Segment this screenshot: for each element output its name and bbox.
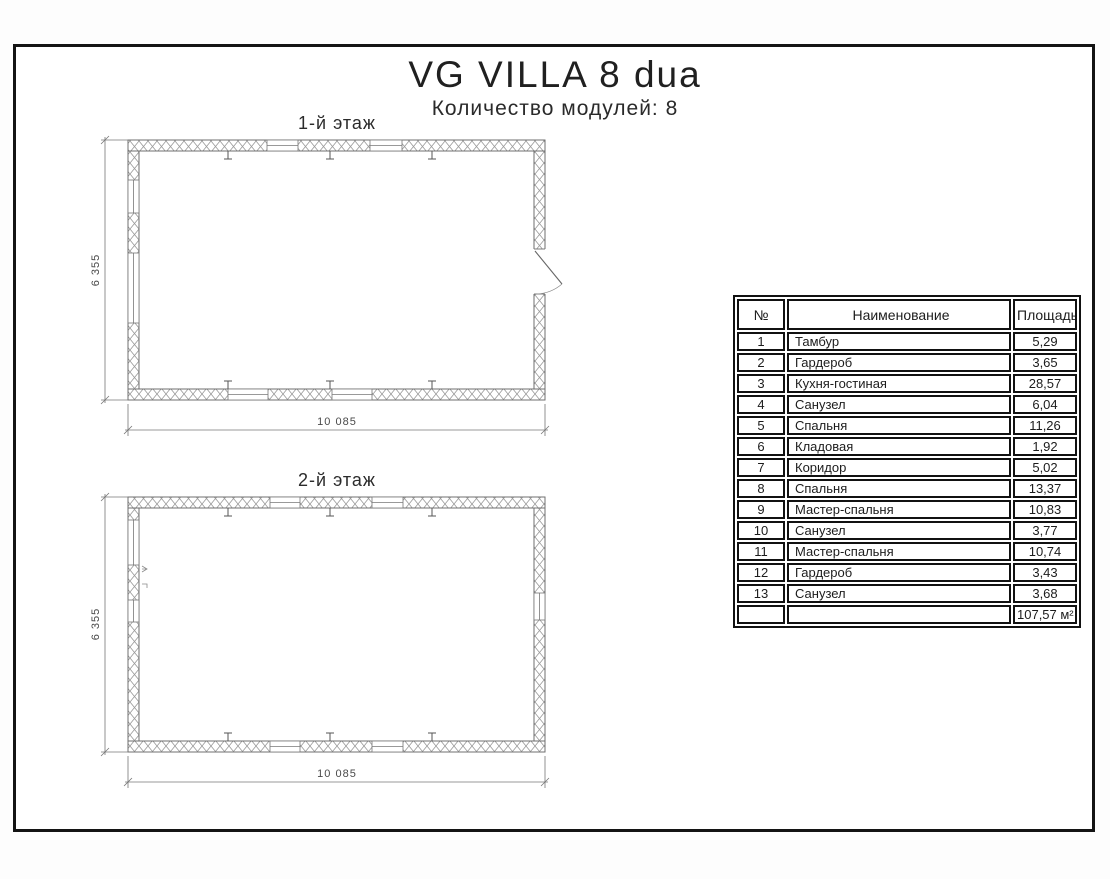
floor-plan-2: 2-й этаж — [90, 470, 549, 788]
room-area: 3,77 — [1013, 521, 1077, 540]
row-number: 10 — [737, 521, 785, 540]
row-number: 9 — [737, 500, 785, 519]
floor1-entry-door — [534, 249, 563, 294]
floor2-windows — [128, 497, 545, 752]
row-number: 2 — [737, 353, 785, 372]
table-header-row: № Наименование Площадь — [737, 299, 1077, 330]
row-number: 6 — [737, 437, 785, 456]
table-row: 5Спальня11,26 — [737, 416, 1077, 435]
room-name: Мастер-спальня — [787, 500, 1011, 519]
table-row: 11Мастер-спальня10,74 — [737, 542, 1077, 561]
floor1-label: 1-й этаж — [298, 113, 376, 133]
room-name: Мастер-спальня — [787, 542, 1011, 561]
table-row: 8Спальня13,37 — [737, 479, 1077, 498]
room-name: Гардероб — [787, 353, 1011, 372]
row-number: 1 — [737, 332, 785, 351]
area-table-container: № Наименование Площадь 1Тамбур5,292Гарде… — [733, 295, 1081, 628]
table-row: 10Санузел3,77 — [737, 521, 1077, 540]
floor1-walls — [128, 140, 545, 400]
room-name: Гардероб — [787, 563, 1011, 582]
room-name: Спальня — [787, 416, 1011, 435]
row-number: 8 — [737, 479, 785, 498]
room-name: Спальня — [787, 479, 1011, 498]
row-number: 4 — [737, 395, 785, 414]
col-header-name: Наименование — [787, 299, 1011, 330]
floor2-width-dimension: 10 085 — [317, 768, 357, 780]
floor2-label: 2-й этаж — [298, 470, 376, 490]
room-area: 10,83 — [1013, 500, 1077, 519]
room-area: 5,02 — [1013, 458, 1077, 477]
table-row: 7Коридор5,02 — [737, 458, 1077, 477]
room-area: 3,43 — [1013, 563, 1077, 582]
table-row: 12Гардероб3,43 — [737, 563, 1077, 582]
room-area: 11,26 — [1013, 416, 1077, 435]
table-row: 3Кухня-гостиная28,57 — [737, 374, 1077, 393]
floor1-width-dimension: 10 085 — [317, 416, 357, 428]
area-table: № Наименование Площадь 1Тамбур5,292Гарде… — [733, 295, 1081, 628]
total-row-number-cell — [737, 605, 785, 624]
floor-plans-drawing: 1-й этаж — [85, 108, 565, 798]
table-row: 9Мастер-спальня10,83 — [737, 500, 1077, 519]
room-name: Санузел — [787, 395, 1011, 414]
floor1-dim-vertical — [101, 136, 128, 404]
room-name: Коридор — [787, 458, 1011, 477]
room-name: Санузел — [787, 584, 1011, 603]
floor2-walls — [128, 497, 545, 752]
floor1-module-ticks — [224, 151, 436, 389]
row-number: 11 — [737, 542, 785, 561]
col-header-area: Площадь — [1013, 299, 1077, 330]
floor2-dim-vertical — [101, 493, 128, 756]
room-area: 28,57 — [1013, 374, 1077, 393]
col-header-number: № — [737, 299, 785, 330]
floor1-height-dimension: 6 355 — [90, 254, 102, 287]
total-row-name-cell — [787, 605, 1011, 624]
table-row: 4Санузел6,04 — [737, 395, 1077, 414]
table-row: 2Гардероб3,65 — [737, 353, 1077, 372]
total-row: 107,57 м² — [737, 605, 1077, 624]
row-number: 7 — [737, 458, 785, 477]
room-area: 6,04 — [1013, 395, 1077, 414]
room-area: 5,29 — [1013, 332, 1077, 351]
area-table-body: 1Тамбур5,292Гардероб3,653Кухня-гостиная2… — [737, 332, 1077, 603]
table-row: 13Санузел3,68 — [737, 584, 1077, 603]
row-number: 12 — [737, 563, 785, 582]
room-name: Тамбур — [787, 332, 1011, 351]
room-area: 1,92 — [1013, 437, 1077, 456]
row-number: 5 — [737, 416, 785, 435]
room-area: 3,68 — [1013, 584, 1077, 603]
row-number: 13 — [737, 584, 785, 603]
room-name: Кухня-гостиная — [787, 374, 1011, 393]
page-title: VG VILLA 8 dua — [0, 54, 1110, 96]
total-area: 107,57 м² — [1013, 605, 1077, 624]
row-number: 3 — [737, 374, 785, 393]
room-area: 10,74 — [1013, 542, 1077, 561]
room-area: 13,37 — [1013, 479, 1077, 498]
floor2-module-ticks — [224, 508, 436, 741]
floor-plan-1: 1-й этаж — [90, 113, 562, 436]
floor1-windows — [128, 140, 402, 400]
floor2-module-marks — [142, 566, 147, 588]
floor2-height-dimension: 6 355 — [90, 608, 102, 641]
room-area: 3,65 — [1013, 353, 1077, 372]
room-name: Кладовая — [787, 437, 1011, 456]
table-row: 1Тамбур5,29 — [737, 332, 1077, 351]
room-name: Санузел — [787, 521, 1011, 540]
table-row: 6Кладовая1,92 — [737, 437, 1077, 456]
